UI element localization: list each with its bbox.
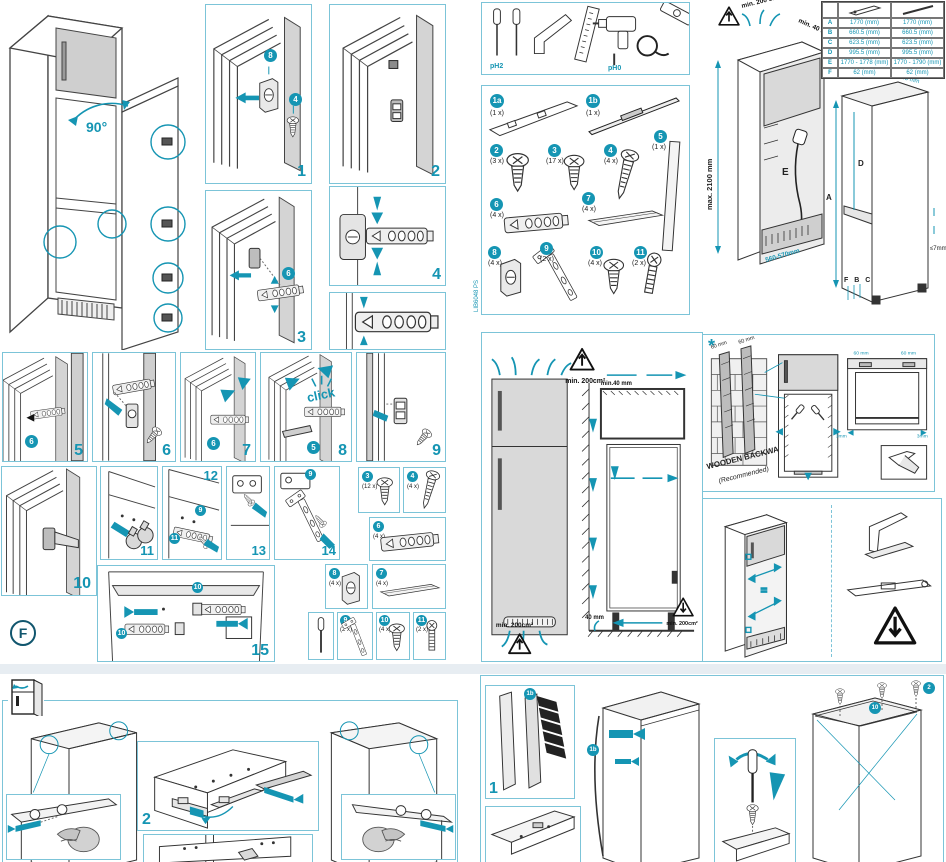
dim-e-label: E	[782, 167, 789, 178]
step-number: 13	[252, 544, 266, 557]
top-rail-inset: 2	[137, 741, 319, 831]
levelling-panel: =	[702, 498, 942, 662]
step-6-panel: 6	[92, 352, 176, 462]
svg-text:=: =	[761, 585, 767, 597]
warning-triangle-icon	[509, 634, 530, 653]
dim-value: 1770 (mm)	[838, 18, 891, 28]
step-number: 11	[140, 544, 154, 557]
part-qty: (4 x)	[582, 206, 596, 213]
partbox-4: 4 (4 x)	[403, 467, 446, 513]
part-9-bracket	[532, 244, 585, 304]
cable-icon	[638, 36, 669, 55]
part-qty: (3 x)	[490, 158, 504, 165]
gap-top-label: min.40 mm	[601, 381, 632, 387]
part-ref: 1b	[587, 744, 599, 756]
step-10-panel: 10	[1, 466, 97, 596]
tool-label-ph0: pH0	[608, 65, 621, 72]
part-id: 1b	[586, 94, 600, 108]
part-ref: 10	[869, 702, 881, 714]
niche-vent-label: min. 200 cm²	[741, 0, 782, 10]
ruler-icon	[575, 6, 600, 62]
part-ref: 10	[116, 628, 127, 639]
part-id: 2	[490, 144, 503, 157]
step-4-panel: 4	[329, 186, 446, 286]
dim-value: 660.5 (mm)	[838, 28, 891, 38]
fridge-overview-drawing: 90°	[2, 2, 200, 350]
part-ref: 1b	[524, 688, 536, 700]
gasket-apply-drawing	[581, 682, 707, 862]
dim-d-label: D	[858, 159, 864, 168]
part-4-screw	[611, 148, 640, 200]
margin-left: 3mm	[836, 434, 847, 440]
screwdriver-inset	[714, 738, 796, 862]
part-qty: (17 x)	[546, 158, 564, 165]
vent-area-top-label: min. 200cm²	[565, 378, 606, 385]
part-ref: 8	[264, 49, 277, 62]
part-id: 7	[582, 192, 595, 205]
part-ref: 11	[169, 533, 180, 544]
part-qty: (1 x)	[586, 110, 600, 117]
partbox-11: 11 (2 x)	[413, 612, 446, 660]
step-number: 8	[338, 443, 347, 459]
part-10-screw	[604, 259, 624, 293]
step-number: 4	[432, 267, 441, 283]
part-ref: 6	[25, 435, 38, 448]
step-number: 6	[162, 443, 171, 459]
step-number: 2	[431, 164, 440, 180]
screwdriver-icon	[747, 750, 758, 825]
part-1b-rail	[589, 98, 679, 135]
parts-panel: 1a (1 x) 1b (1 x) 2 (3 x) 3 (17 x) 4 (4 …	[481, 85, 690, 315]
step-12-panel: 12 9 11	[162, 466, 222, 560]
level-tool-icon	[848, 580, 931, 596]
dim-value: 62 (mm)	[838, 68, 891, 78]
part-ref: 9	[305, 469, 316, 480]
dim-a-label: A	[826, 193, 832, 202]
section-f-badge: F	[10, 620, 36, 646]
part-id: 1a	[490, 94, 504, 108]
part-11-bolt	[642, 252, 662, 294]
part-ref: 10	[192, 582, 203, 593]
step-number: 1	[297, 164, 306, 180]
tool-label-ph2: pH2	[490, 63, 503, 70]
dim-fbc-label: F B C	[844, 277, 872, 284]
saw-icon	[881, 446, 926, 480]
step-2-panel: 2	[329, 4, 446, 184]
part-id: 8	[488, 246, 501, 259]
dim-key: A	[822, 18, 838, 28]
part-id: 3	[548, 144, 561, 157]
dim-value: 995.5 (mm)	[891, 48, 944, 58]
manual-page: 90° 8 4 1 2	[0, 0, 946, 862]
part-ref: 9	[195, 505, 206, 516]
board-gap-label-2: 60 mm	[738, 335, 756, 346]
partbox-8: 8 (4 x)	[325, 564, 368, 609]
partbox-9: 9 (2 x)	[337, 612, 373, 660]
dim-key: B	[822, 28, 838, 38]
section-f-label: F	[19, 625, 28, 641]
board-gap-label-1: 60 mm	[710, 340, 728, 351]
dim-value: 62 (mm)	[891, 68, 944, 78]
doc-code: LIB6048 PS	[474, 280, 480, 312]
part-5-panel	[662, 141, 679, 250]
dim-key: E	[822, 58, 838, 68]
vent-area-bottom-label: min. 200cm²	[496, 622, 534, 629]
back-panel-inset-partial	[143, 834, 313, 862]
square-icon	[534, 15, 571, 54]
table-corner	[822, 2, 838, 18]
step-number: 1	[489, 781, 498, 797]
fridge-door-open-icon	[8, 678, 44, 716]
gasket-inset: 1b 1	[485, 685, 575, 799]
dim-value: 1770 - 1790 (mm)	[891, 58, 944, 68]
part-2-screw	[507, 154, 528, 191]
partbox-screwdriver	[308, 612, 334, 660]
step-number: 15	[251, 643, 269, 659]
dimension-table: A 1770 (mm) 1770 (mm) B 660.5 (mm) 660.5…	[821, 1, 945, 79]
part-6-slider	[504, 213, 569, 233]
backwall-panel: * 60 mm 60 mm WOODEN BACKWALL (Recommend…	[702, 334, 935, 492]
drill-icon	[593, 17, 636, 66]
step-number: 7	[242, 443, 251, 459]
warning-triangle-icon	[876, 608, 915, 643]
partbox-6: 6 (4 x)	[369, 517, 446, 561]
dim-value: 995.5 (mm)	[838, 48, 891, 58]
step-number: 3	[297, 330, 306, 346]
part-3-screw	[564, 155, 584, 189]
step-number: 12	[204, 469, 218, 482]
step-7-panel: 6 7	[180, 352, 256, 462]
insert-cover-inset	[341, 794, 456, 860]
part-qty: (4 x)	[490, 212, 504, 219]
step-9-panel: 9	[356, 352, 446, 462]
square-tool-icon	[865, 513, 912, 558]
step-4b-panel	[329, 292, 446, 350]
dim-key: C	[822, 38, 838, 48]
remove-cover-inset	[6, 794, 121, 860]
step-11-panel: 11	[100, 466, 158, 560]
screwdriver-icon	[309, 613, 333, 659]
backwall-subtitle: (Recommended)	[718, 466, 770, 485]
vent-area-right-label: min. 200cm²	[666, 621, 698, 627]
niche-height-label: max. 2100 mm	[705, 158, 714, 210]
part-qty: (4 x)	[588, 260, 602, 267]
dim-value: 1770 (mm)	[891, 18, 944, 28]
topview-gap-2: 60 mm	[901, 351, 916, 357]
step-number: 10	[73, 576, 91, 592]
part-ref: 5	[307, 441, 320, 454]
part-qty: (1 x)	[652, 144, 666, 151]
sliding-door-icon	[891, 2, 944, 18]
tolerance-label: ≤7mm	[930, 246, 946, 252]
corner-inset-partial	[485, 806, 581, 862]
ventilation-panel: min. 200cm² min. 200cm²	[481, 332, 703, 662]
door-mounting-panel: 1b 1 1b	[480, 675, 944, 862]
part-qty: (4 x)	[488, 260, 502, 267]
step-number: 9	[432, 443, 441, 459]
step-15-panel: 10 10 15	[97, 565, 275, 662]
click-label: click	[305, 384, 337, 405]
hinge-cover-panel: 2	[2, 700, 458, 862]
part-id: 5	[654, 130, 667, 143]
part-1a-plate	[490, 102, 577, 136]
dim-key: D	[822, 48, 838, 58]
part-id: 6	[490, 198, 503, 211]
step-14-panel: 9 14	[274, 466, 340, 560]
partbox-3: 3 (12 x)	[358, 467, 400, 513]
airflow-arrows-top	[492, 357, 571, 375]
gap-bottom-label: 40 mm	[585, 615, 604, 621]
part-id: 9	[540, 242, 553, 255]
hinge-door-icon	[838, 2, 891, 18]
gap-flow-arrows	[589, 419, 619, 599]
part-7-strip	[589, 211, 663, 226]
section-divider	[0, 664, 946, 674]
warning-triangle-icon	[570, 349, 593, 370]
level-icon	[660, 3, 689, 26]
part-id: 11	[634, 246, 647, 259]
step-8-panel: click 5 8	[260, 352, 352, 462]
part-qty: (2 x)	[540, 256, 554, 263]
part-id: 10	[590, 246, 603, 259]
part-ref: 2	[923, 682, 935, 694]
part-qty: (4 x)	[604, 158, 618, 165]
step-number: 2	[142, 812, 151, 828]
dim-value: 660.5 (mm)	[891, 28, 944, 38]
partbox-10: 10 (4 x)	[376, 612, 410, 660]
tools-panel: pH2 pH0	[481, 2, 690, 75]
part-ref: 6	[282, 267, 295, 280]
topview-gap-1: 60 mm	[854, 351, 869, 357]
part-8-bracket	[501, 259, 521, 296]
dim-value: 1770 - 1778 (mm)	[838, 58, 891, 68]
part-ref: 4	[289, 93, 302, 106]
step-3-panel: 6 3	[205, 190, 312, 350]
screwdriver-icon	[494, 9, 520, 56]
step-number: 5	[74, 443, 83, 459]
angle-label: 90°	[86, 119, 107, 135]
part-qty: (2 x)	[632, 260, 646, 267]
part-qty: (1 x)	[490, 110, 504, 117]
step-number: 14	[322, 544, 336, 557]
dim-key: F	[822, 68, 838, 78]
step-13-panel: 13	[226, 466, 270, 560]
part-id: 4	[604, 144, 617, 157]
step-1-panel: 8 4 1	[205, 4, 312, 184]
warning-triangle-icon	[673, 598, 693, 615]
step-5-panel: 6 5	[2, 352, 88, 462]
partbox-7: 7 (4 x)	[372, 564, 446, 609]
dim-value: 623.5 (mm)	[838, 38, 891, 48]
dim-value: 623.5 (mm)	[891, 38, 944, 48]
warning-triangle-icon	[719, 7, 739, 25]
niche-dimensions-drawing: min. 200 cm² min. 40 mm E max. 2100 mm 5…	[702, 0, 946, 332]
part-ref: 6	[207, 437, 220, 450]
